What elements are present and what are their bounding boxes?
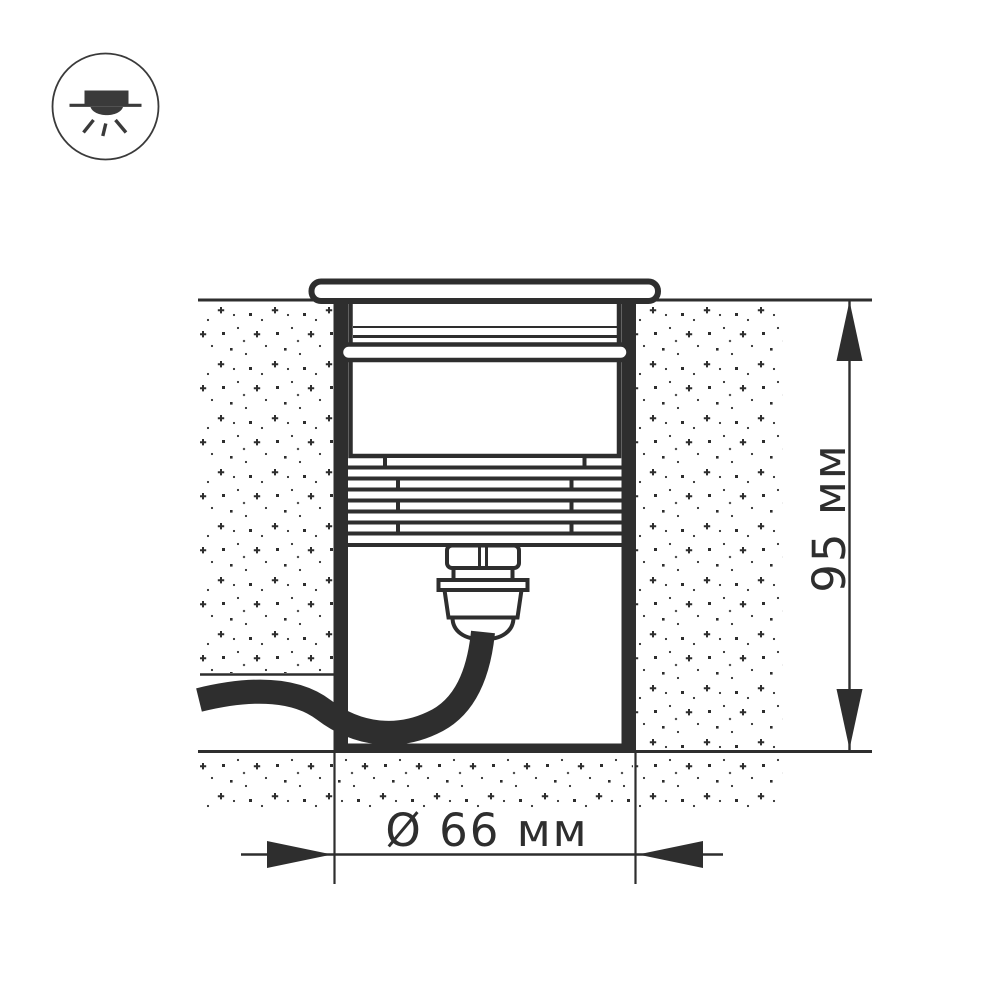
sleeve-bottom [334, 744, 637, 753]
ground-right-block [636, 301, 783, 749]
ground-left-block [200, 301, 334, 673]
gland-nut [447, 546, 519, 569]
arrowhead-left-icon [638, 841, 703, 868]
drawing-canvas: 95 мм Ø 66 мм [0, 0, 1000, 1000]
height-dimension-label: 95 мм [803, 443, 856, 592]
fin-slat [346, 534, 624, 546]
heatsink-fins [346, 456, 624, 545]
ground-bottom-right-strip [636, 754, 783, 809]
arrowhead-down-icon [837, 689, 863, 749]
o-ring-seal [341, 345, 629, 361]
corner-badge [53, 54, 159, 160]
technical-drawing-page: 95 мм Ø 66 мм [0, 0, 1000, 1000]
luminaire-body [341, 301, 629, 545]
height-dimension: 95 мм [803, 300, 863, 750]
gland-cup [445, 590, 522, 618]
cable-gland [439, 546, 528, 640]
arrowhead-right-icon [267, 841, 332, 868]
diameter-dimension-label: Ø 66 мм [385, 804, 588, 857]
ground-bottom-center-strip [338, 754, 633, 809]
body-housing [351, 301, 620, 456]
ground-bottom-left-strip [200, 754, 334, 809]
arrowhead-up-icon [837, 301, 863, 361]
